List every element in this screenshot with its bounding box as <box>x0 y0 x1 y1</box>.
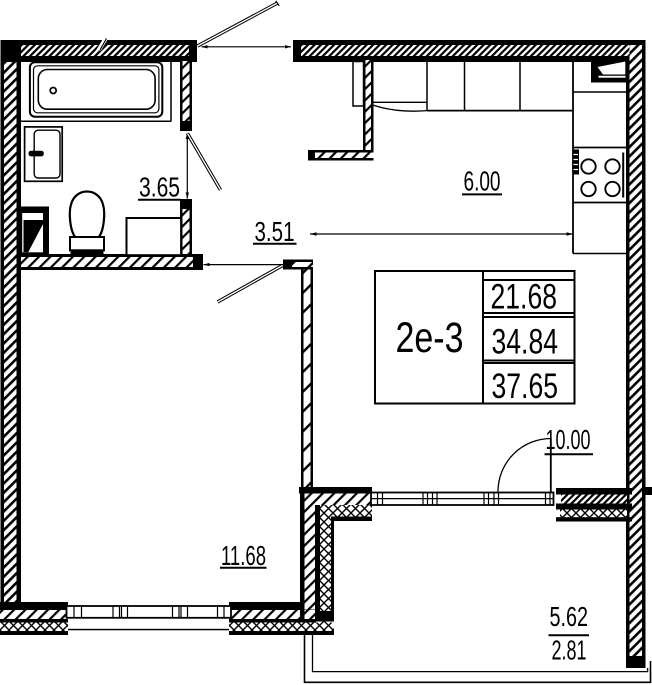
svg-text:3.51: 3.51 <box>255 216 295 247</box>
svg-text:10.00: 10.00 <box>546 424 591 455</box>
svg-text:37.65: 37.65 <box>492 367 559 406</box>
svg-text:34.84: 34.84 <box>492 323 559 362</box>
svg-text:11.68: 11.68 <box>221 540 266 571</box>
svg-text:2е-3: 2е-3 <box>396 314 464 362</box>
svg-text:3.65: 3.65 <box>139 172 180 203</box>
svg-text:21.68: 21.68 <box>491 278 558 317</box>
svg-text:5.62: 5.62 <box>550 601 589 632</box>
svg-text:2.81: 2.81 <box>552 635 587 666</box>
svg-text:6.00: 6.00 <box>464 166 501 197</box>
